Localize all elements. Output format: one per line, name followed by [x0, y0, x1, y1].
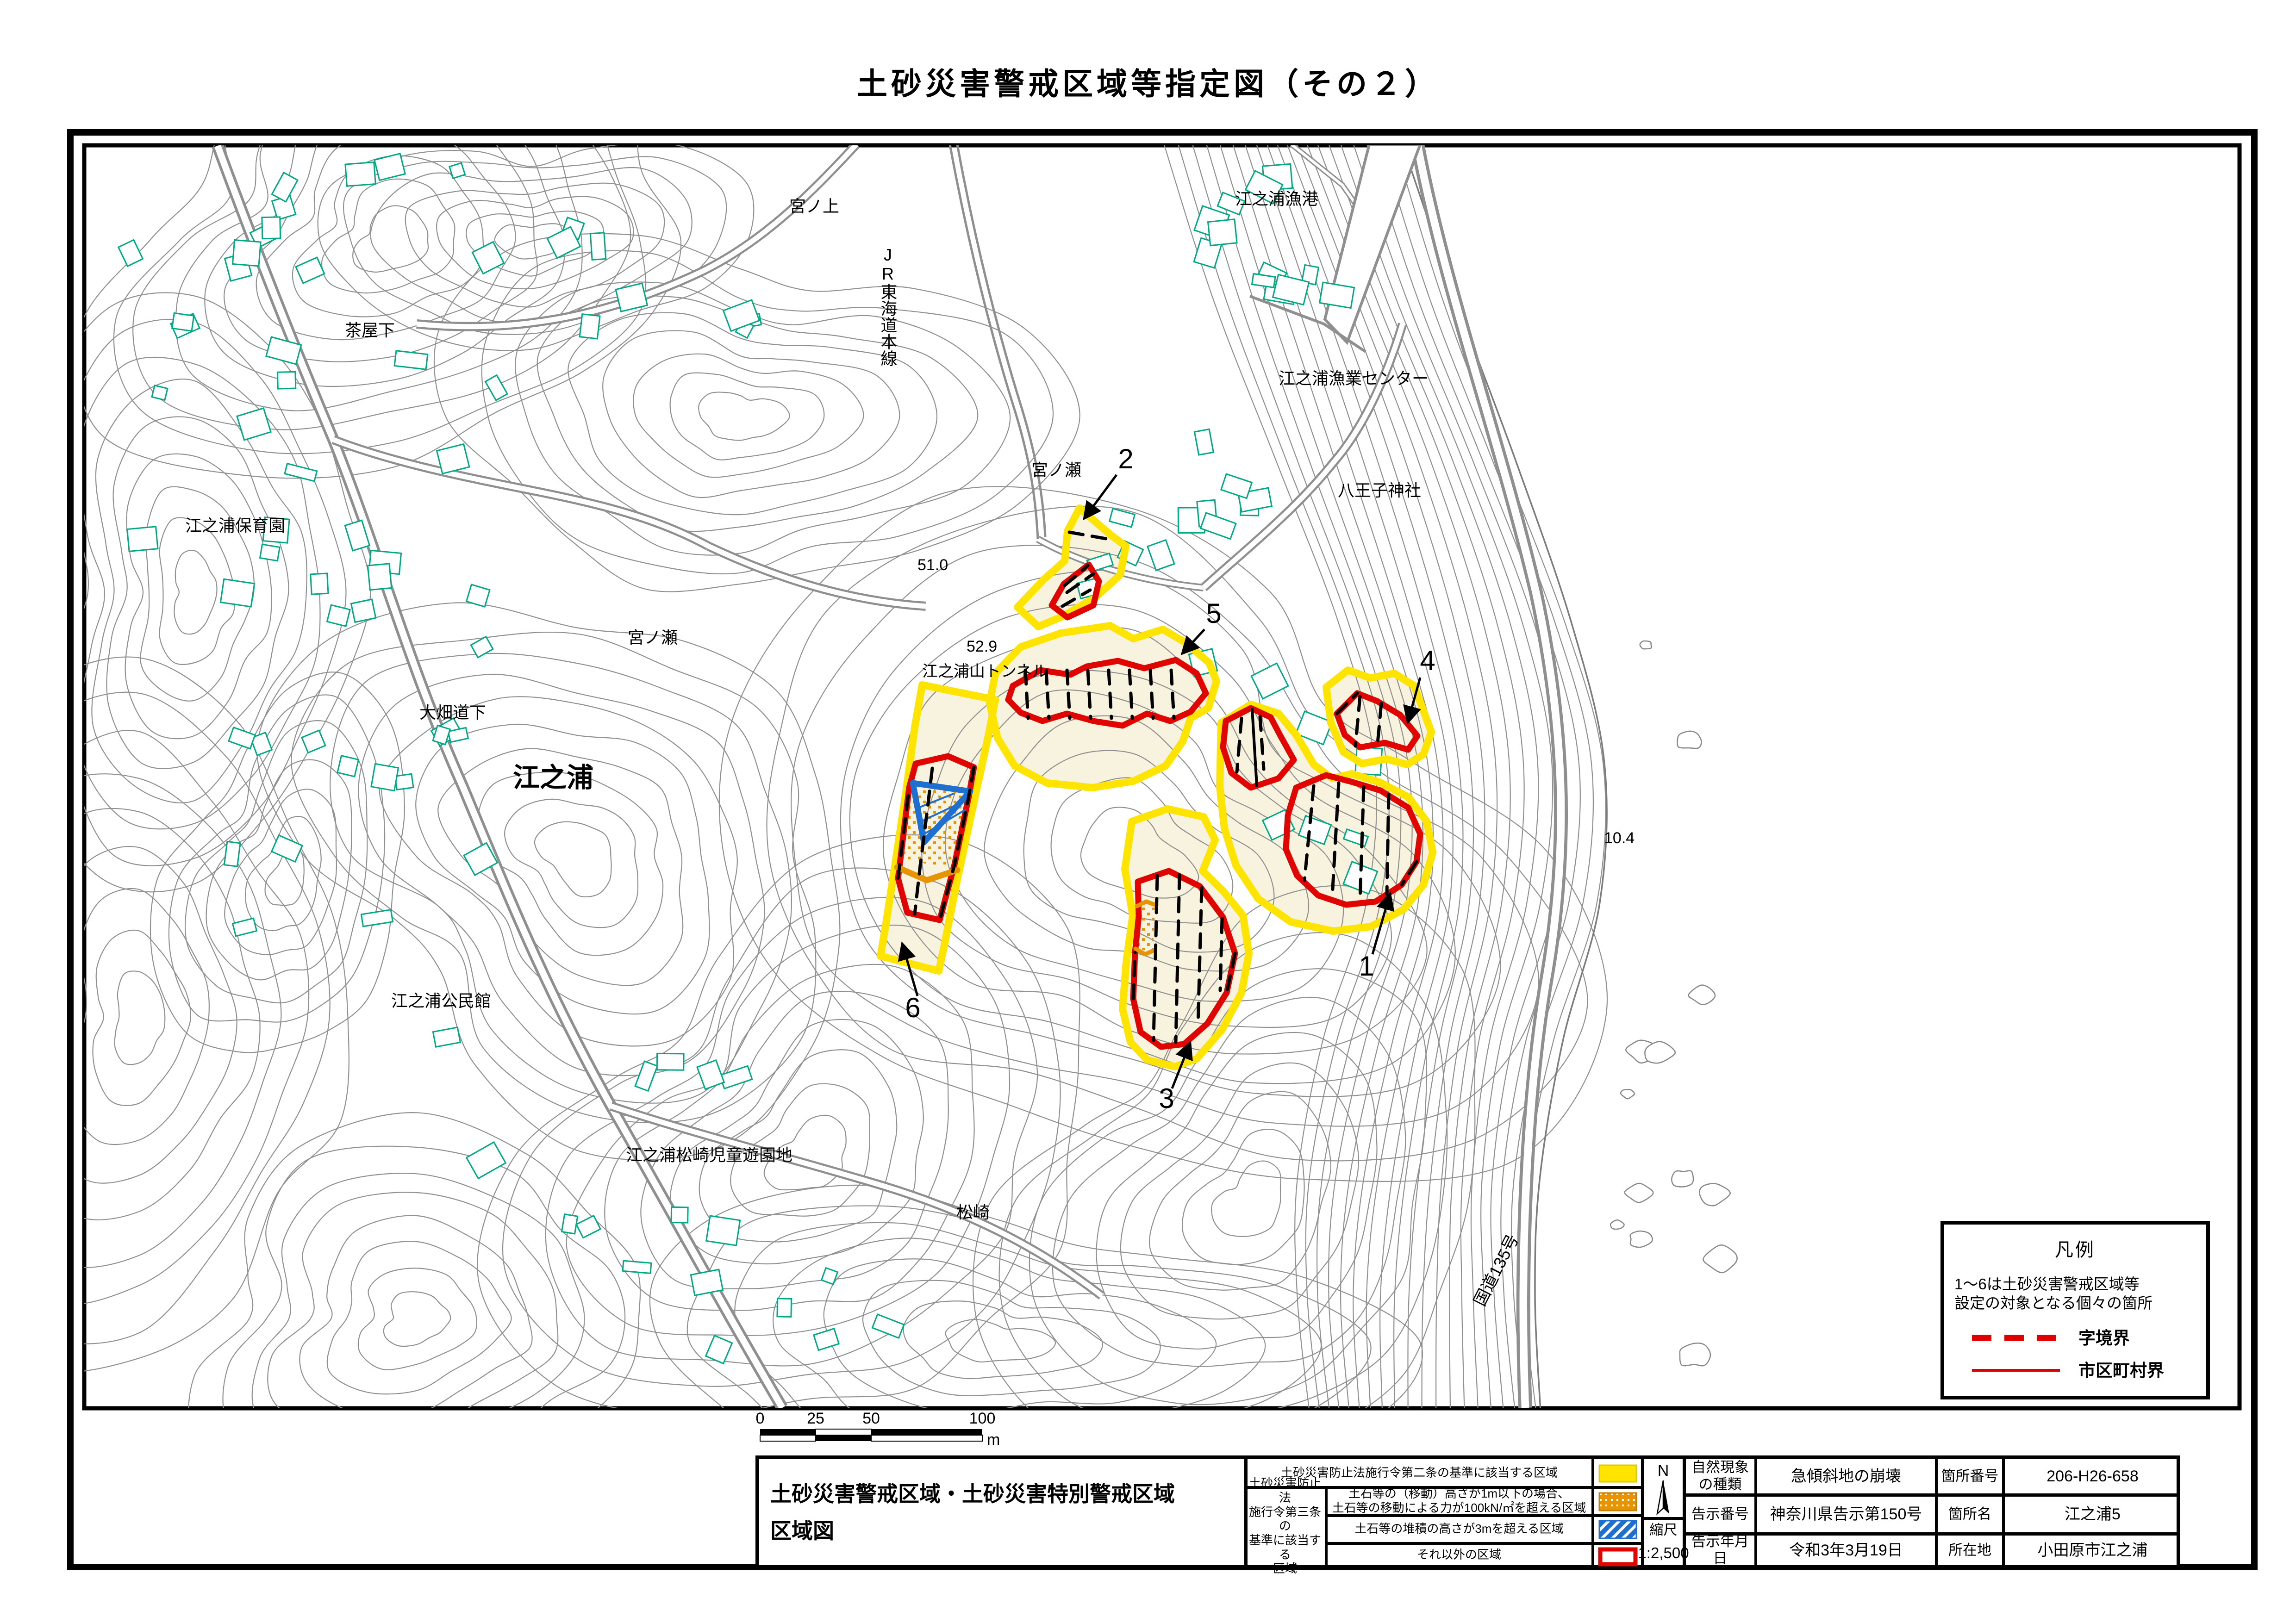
building [394, 351, 428, 369]
building [260, 544, 280, 561]
building [337, 756, 359, 777]
zone-callout-number: 2 [1118, 443, 1133, 474]
building [657, 1053, 684, 1070]
info-r2-value1: 神奈川県告示第150号 [1757, 1497, 1935, 1532]
info-r1-value2: 206-H26-658 [2005, 1459, 2180, 1493]
info-r1-value1: 急傾斜地の崩壊 [1757, 1459, 1935, 1493]
map-label: 10.4 [1604, 829, 1635, 847]
zone-callout-number: 3 [1159, 1083, 1174, 1114]
map-label: 江之浦山トンネル [922, 663, 1048, 680]
info-r3-value1: 令和3年3月19日 [1757, 1536, 1935, 1565]
scale-tick-0: 0 [756, 1410, 765, 1427]
building [671, 1207, 688, 1223]
scale-tick-25: 25 [807, 1410, 824, 1427]
aza-boundary-label: 字境界 [2078, 1329, 2130, 1348]
building [152, 386, 168, 400]
building [368, 564, 391, 590]
swatch-warning-yellow-icon [1598, 1464, 1638, 1483]
building [1252, 274, 1275, 288]
info-r3-value2: 小田原市江之浦 [2005, 1536, 2180, 1565]
north-label: N [1658, 1462, 1669, 1480]
building [691, 1269, 723, 1295]
building [277, 372, 295, 389]
building [351, 599, 376, 622]
zone-callout-number: 1 [1359, 951, 1374, 982]
north-arrow-icon: N [1644, 1460, 1683, 1517]
info-r1-label1: 自然現象 の種類 [1686, 1459, 1754, 1493]
building [449, 163, 465, 178]
islet [1680, 1343, 1710, 1366]
map-label: 江之浦 [513, 763, 593, 793]
legend-law3-header: 土砂災害防止法 施行令第三条の 基準に該当する 区域 [1246, 1488, 1324, 1564]
zone-callout-number: 5 [1206, 598, 1221, 629]
map-sheet: 土砂災害警戒区域等指定図（その２） 宮ノ上茶屋下江之浦保育園宮ノ瀬大畑道下江之浦… [0, 0, 2296, 1623]
map-label: 大畑道下 [419, 703, 486, 722]
info-r1-label2: 箇所番号 [1938, 1459, 2002, 1493]
legend-row4-text: それ以外の区域 [1328, 1544, 1591, 1565]
info-r2-value2: 江之浦5 [2005, 1497, 2180, 1532]
building [327, 605, 350, 626]
islet [1672, 1170, 1693, 1187]
building [232, 240, 261, 266]
info-r3-label1: 告示年月日 [1686, 1536, 1754, 1565]
scale-tick-100: 100 [969, 1410, 996, 1427]
map-label: JR東海道本線 [879, 245, 898, 367]
building [127, 527, 158, 552]
legend-row3-text: 土石等の堆積の高さが3mを超える区域 [1328, 1516, 1591, 1541]
zone-callout-number: 6 [905, 992, 920, 1023]
map-label: 八王子神社 [1338, 481, 1421, 500]
scale-unit: m [987, 1431, 1000, 1449]
legend-note: 1～6は土砂災害警戒区域等 設定の対象となる個々の箇所 [1954, 1275, 2195, 1313]
map-label: 江之浦漁港 [1235, 189, 1318, 208]
map-label: 宮ノ上 [789, 197, 839, 216]
legend-title: 凡例 [1944, 1235, 2206, 1262]
map-label: 江之浦松崎児童遊園地 [626, 1145, 792, 1164]
swatch-blue-hatch-icon [1598, 1519, 1638, 1540]
building [562, 1214, 577, 1234]
map-label: 51.0 [917, 556, 948, 574]
legend-line-samples: 字境界 市区町村界 [1944, 1322, 2206, 1391]
map-legend-box: 凡例 1～6は土砂災害警戒区域等 設定の対象となる個々の箇所 字境界 市区町村界 [1940, 1221, 2210, 1399]
survey-dash-line [1220, 919, 1222, 990]
sheet-title: 土砂災害警戒区域・土砂災害特別警戒区域 区域図 [770, 1463, 1238, 1562]
map-label: 宮ノ瀬 [1031, 460, 1081, 479]
scale-value: 1:2,500 [1641, 1542, 1685, 1565]
building [1320, 282, 1354, 308]
islet [1678, 731, 1702, 748]
scale-tick-50: 50 [862, 1410, 880, 1427]
info-r2-label1: 告示番号 [1686, 1497, 1754, 1532]
info-r3-label2: 所在地 [1938, 1536, 2002, 1565]
zone-callout-number: 4 [1420, 645, 1435, 676]
legend-row2-text: 土石等の（移動）高さが1m以下の場合、 土石等の移動による力が100kN/㎡を超… [1328, 1488, 1591, 1514]
building [1208, 219, 1237, 246]
map-label: 江之浦漁業センター [1279, 369, 1429, 388]
building [262, 217, 281, 239]
building [395, 774, 413, 790]
building [345, 162, 375, 186]
swatch-red-outline-icon [1598, 1547, 1638, 1567]
map-label: 松崎 [956, 1203, 990, 1222]
info-r2-label2: 箇所名 [1938, 1497, 2002, 1532]
map-label: 茶屋下 [345, 321, 395, 340]
building [623, 1261, 651, 1273]
municipal-boundary-label: 市区町村界 [2078, 1361, 2164, 1380]
title-block: 土砂災害警戒区域・土砂災害特別警戒区域 区域図 土砂災害防止法施行令第二条の基準… [755, 1455, 2180, 1569]
building [371, 764, 399, 790]
scale-label: 縮尺 [1644, 1520, 1683, 1541]
building [590, 233, 605, 260]
building [706, 1216, 740, 1245]
map-label: 宮ノ瀬 [628, 628, 678, 647]
building [580, 314, 600, 339]
scale-bar-strip [760, 1429, 982, 1441]
building [311, 573, 328, 594]
map-label: 江之浦保育園 [185, 516, 285, 535]
map-label: 江之浦公民館 [391, 991, 491, 1010]
building [777, 1299, 792, 1317]
building [172, 313, 194, 331]
swatch-orange-dots-icon [1598, 1492, 1638, 1512]
building [224, 841, 240, 866]
islet [1640, 641, 1652, 649]
scale-bar: 0 25 50 100 m [741, 1410, 1055, 1456]
map-label: 52.9 [967, 638, 997, 655]
building [220, 579, 254, 607]
